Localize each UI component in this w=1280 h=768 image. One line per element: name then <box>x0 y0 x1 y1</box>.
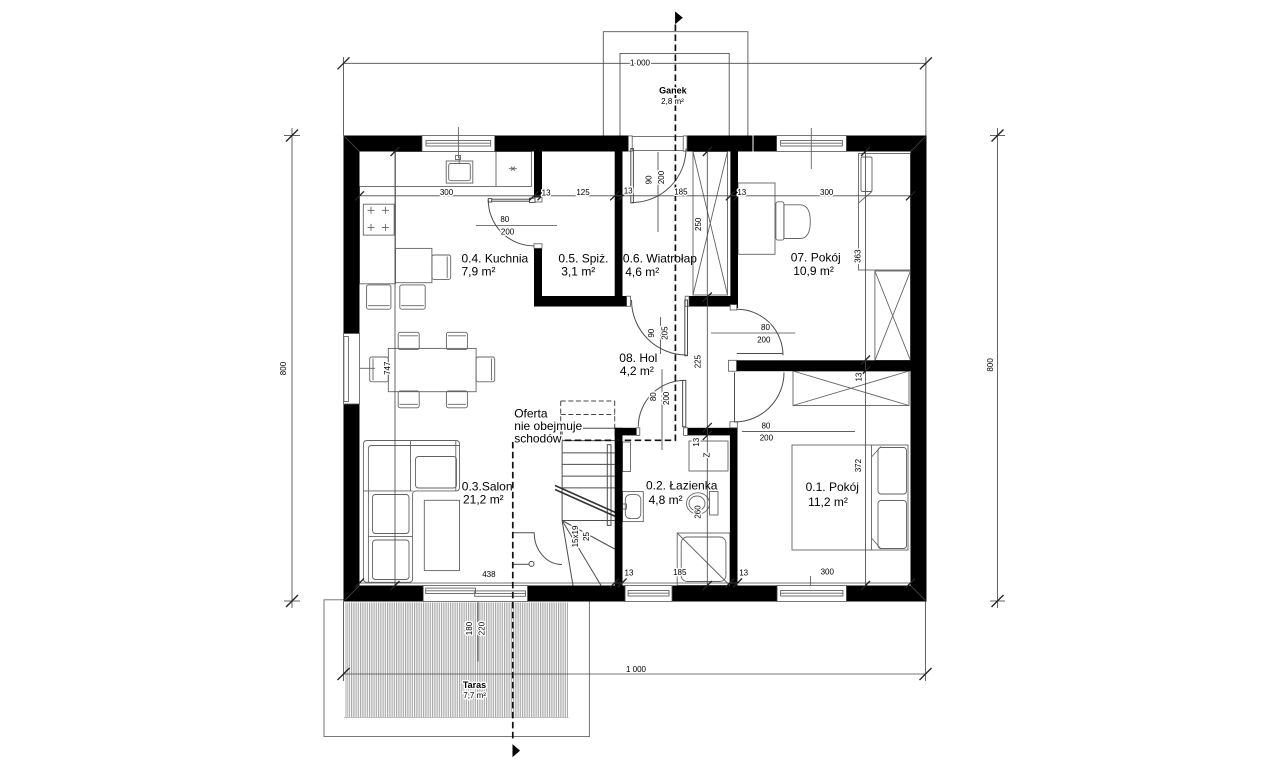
svg-text:3,1 m²: 3,1 m² <box>561 265 595 279</box>
svg-text:13: 13 <box>692 437 701 446</box>
svg-text:300: 300 <box>440 188 454 197</box>
svg-text:0.4. Kuchnia: 0.4. Kuchnia <box>462 251 529 265</box>
svg-text:13: 13 <box>624 187 633 196</box>
svg-text:07. Pokój: 07. Pokój <box>791 251 841 265</box>
svg-text:4,8 m²: 4,8 m² <box>649 493 683 507</box>
svg-text:225: 225 <box>693 354 702 368</box>
svg-text:220: 220 <box>478 621 487 635</box>
svg-text:13: 13 <box>737 188 746 197</box>
svg-text:0.5. Spiż.: 0.5. Spiż. <box>558 251 608 265</box>
svg-text:363: 363 <box>854 249 863 263</box>
svg-text:747: 747 <box>383 361 392 375</box>
svg-text:1 000: 1 000 <box>626 665 647 674</box>
svg-text:08. Hol: 08. Hol <box>619 351 657 365</box>
svg-text:185: 185 <box>673 568 687 577</box>
svg-text:80: 80 <box>761 323 770 332</box>
svg-text:800: 800 <box>986 358 995 372</box>
svg-text:13: 13 <box>739 568 748 577</box>
svg-text:11,2 m²: 11,2 m² <box>808 495 848 509</box>
svg-text:200: 200 <box>662 391 671 405</box>
svg-text:0.3.Salon: 0.3.Salon <box>462 479 513 493</box>
svg-text:Ganek: Ganek <box>659 86 688 96</box>
svg-text:260: 260 <box>694 505 703 519</box>
svg-text:7,9 m²: 7,9 m² <box>462 265 496 279</box>
svg-text:10,9 m²: 10,9 m² <box>793 264 834 278</box>
svg-text:schodów: schodów <box>514 432 562 446</box>
svg-text:300: 300 <box>821 568 835 577</box>
svg-text:200: 200 <box>657 170 666 184</box>
svg-text:13: 13 <box>625 568 634 577</box>
svg-text:4,2 m²: 4,2 m² <box>620 364 654 378</box>
svg-text:80: 80 <box>649 392 658 401</box>
svg-text:185: 185 <box>674 188 688 197</box>
svg-text:Z: Z <box>703 452 712 457</box>
svg-text:13: 13 <box>542 189 551 198</box>
svg-text:80: 80 <box>761 422 770 431</box>
svg-text:0.2. Łazienka: 0.2. Łazienka <box>646 479 718 493</box>
svg-text:125: 125 <box>576 188 590 197</box>
svg-text:1 000: 1 000 <box>630 58 651 67</box>
svg-text:0.1. Pokój: 0.1. Pokój <box>806 480 859 494</box>
svg-text:90: 90 <box>647 328 656 337</box>
svg-text:438: 438 <box>482 570 496 579</box>
svg-text:200: 200 <box>501 227 515 236</box>
svg-text:7,7 m²: 7,7 m² <box>463 691 486 700</box>
svg-text:25: 25 <box>582 532 591 541</box>
svg-text:800: 800 <box>279 361 288 375</box>
svg-text:372: 372 <box>854 458 863 472</box>
svg-text:200: 200 <box>757 336 771 345</box>
svg-text:15x19: 15x19 <box>571 525 580 547</box>
svg-text:250: 250 <box>694 217 703 231</box>
svg-text:300: 300 <box>820 188 834 197</box>
svg-text:2,8 m²: 2,8 m² <box>661 97 684 106</box>
svg-text:200: 200 <box>760 433 774 442</box>
svg-text:80: 80 <box>500 215 509 224</box>
svg-text:4,6 m²: 4,6 m² <box>625 265 659 279</box>
svg-text:21,2 m²: 21,2 m² <box>463 492 504 506</box>
svg-text:13: 13 <box>855 372 864 381</box>
svg-text:90: 90 <box>645 175 654 184</box>
svg-text:Taras: Taras <box>463 680 486 690</box>
svg-text:0.6. Wiatrołap: 0.6. Wiatrołap <box>623 251 697 265</box>
svg-text:205: 205 <box>661 326 670 340</box>
svg-text:180: 180 <box>465 621 474 635</box>
